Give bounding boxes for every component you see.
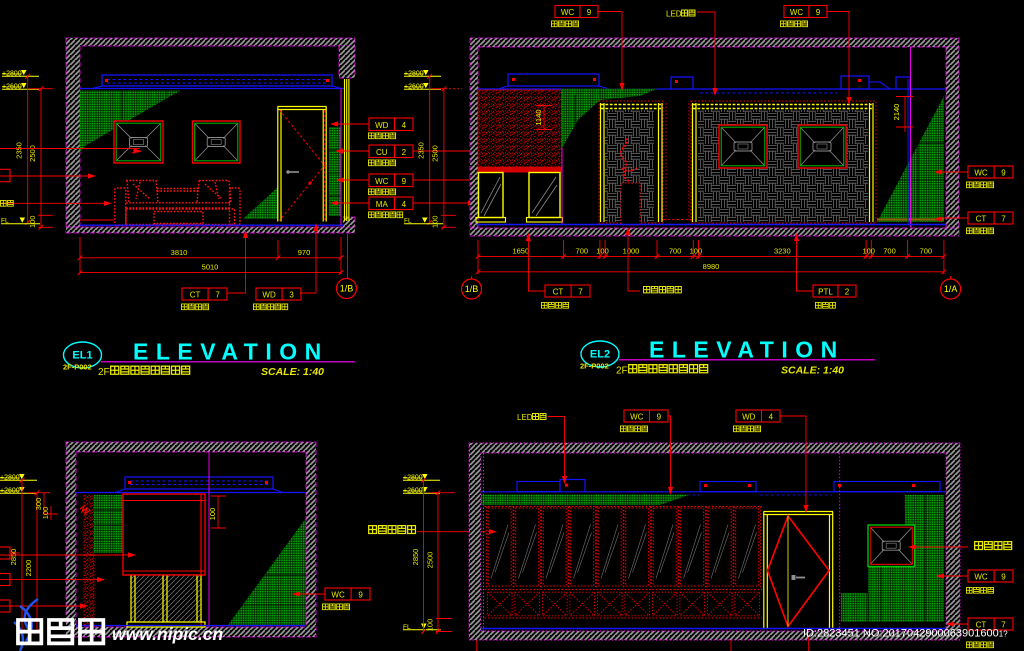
svg-text:1/A: 1/A — [944, 284, 958, 294]
svg-text:7: 7 — [215, 290, 220, 299]
svg-text:700: 700 — [669, 246, 682, 255]
svg-text:1/B: 1/B — [340, 284, 354, 294]
svg-text:100: 100 — [41, 507, 50, 520]
svg-text:1650: 1650 — [512, 246, 529, 255]
svg-text:3810: 3810 — [171, 248, 188, 257]
svg-text:WC: WC — [790, 8, 804, 17]
svg-text:SCALE: 1:40: SCALE: 1:40 — [261, 366, 324, 378]
svg-text:100: 100 — [431, 216, 440, 229]
svg-text:1140: 1140 — [534, 109, 543, 125]
svg-text:2140: 2140 — [892, 104, 901, 121]
svg-text:2200: 2200 — [24, 560, 33, 577]
svg-text:2500: 2500 — [431, 145, 440, 162]
svg-text:7: 7 — [1001, 214, 1006, 223]
svg-text:970: 970 — [298, 248, 311, 257]
svg-text:WC: WC — [974, 572, 988, 581]
svg-text:2: 2 — [845, 287, 850, 296]
svg-text:MA: MA — [376, 200, 389, 209]
svg-text:WC: WC — [331, 590, 345, 599]
svg-text:100: 100 — [28, 216, 37, 229]
svg-text:EL2: EL2 — [590, 349, 610, 361]
svg-text:LED: LED — [666, 10, 682, 19]
svg-text:700: 700 — [883, 246, 896, 255]
svg-text:700: 700 — [576, 246, 589, 255]
svg-text:WC: WC — [974, 168, 988, 177]
svg-text:WD: WD — [375, 121, 389, 130]
svg-text:1/B: 1/B — [465, 284, 479, 294]
svg-text:8980: 8980 — [703, 262, 720, 271]
svg-text:CU: CU — [376, 148, 388, 157]
svg-text:100: 100 — [208, 508, 217, 521]
svg-text:9: 9 — [1001, 168, 1006, 177]
svg-text:3: 3 — [289, 290, 294, 299]
svg-text:2F-P002: 2F-P002 — [580, 362, 609, 371]
svg-text:CT: CT — [190, 290, 201, 299]
svg-text:2350: 2350 — [417, 142, 426, 159]
svg-text:9: 9 — [1001, 572, 1006, 581]
svg-text:ID:2823451 NO:2017042900063901: ID:2823451 NO:20170429000639016001? — [803, 628, 1008, 640]
svg-text:100: 100 — [690, 246, 703, 255]
svg-text:PTL: PTL — [818, 287, 833, 296]
svg-text:2F: 2F — [98, 367, 110, 378]
svg-text:ELEVATION: ELEVATION — [133, 339, 329, 365]
svg-text:4: 4 — [769, 412, 774, 421]
svg-text:2850: 2850 — [411, 549, 420, 566]
svg-text:2500: 2500 — [426, 552, 435, 569]
svg-text:WD: WD — [262, 290, 276, 299]
svg-text:100: 100 — [426, 619, 435, 632]
svg-text:5010: 5010 — [202, 263, 219, 272]
svg-text:2: 2 — [402, 148, 407, 157]
svg-text:9: 9 — [587, 8, 592, 17]
svg-text:EL1: EL1 — [72, 350, 92, 362]
svg-text:WC: WC — [375, 177, 389, 186]
svg-text:7: 7 — [578, 287, 583, 296]
svg-text:9: 9 — [402, 177, 407, 186]
svg-text:www.nipic.cn: www.nipic.cn — [112, 624, 223, 644]
svg-text:WD: WD — [742, 412, 756, 421]
svg-text:2F-P002: 2F-P002 — [63, 363, 92, 372]
svg-text:SCALE: 1:40: SCALE: 1:40 — [781, 365, 844, 377]
svg-text:7: 7 — [1001, 620, 1006, 629]
svg-text:WC: WC — [630, 412, 644, 421]
svg-text:WC: WC — [561, 8, 575, 17]
svg-text:CT: CT — [553, 287, 564, 296]
svg-text:ELEVATION: ELEVATION — [649, 337, 845, 363]
svg-text:4: 4 — [402, 200, 407, 209]
svg-text:100: 100 — [862, 246, 875, 255]
svg-text:9: 9 — [657, 412, 662, 421]
svg-text:LED: LED — [517, 413, 533, 422]
svg-text:700: 700 — [920, 246, 933, 255]
svg-text:1000: 1000 — [623, 246, 640, 255]
svg-text:9: 9 — [816, 8, 821, 17]
svg-text:2350: 2350 — [15, 142, 24, 159]
svg-text:2500: 2500 — [28, 145, 37, 162]
svg-text:100: 100 — [596, 246, 609, 255]
svg-text:9: 9 — [358, 590, 363, 599]
svg-text:2F: 2F — [616, 366, 628, 377]
svg-text:CT: CT — [976, 214, 987, 223]
svg-text:4: 4 — [402, 121, 407, 130]
svg-text:3230: 3230 — [774, 246, 791, 255]
